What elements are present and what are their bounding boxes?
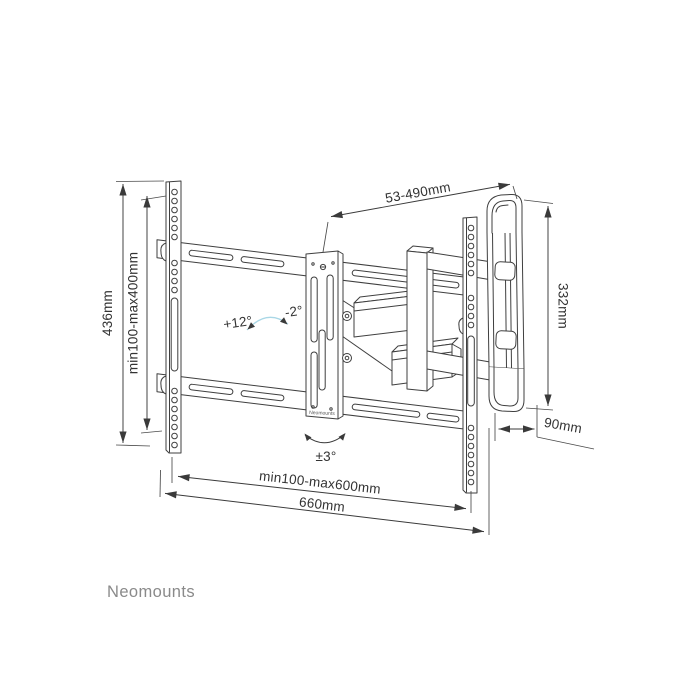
level-label: ±3° — [316, 449, 337, 464]
tilt-down-label: -2° — [284, 303, 304, 320]
width-total-label: 660mm — [298, 494, 345, 514]
brand-logo-text: Neomounts — [107, 583, 195, 601]
plate-brand-label: Neomounts — [309, 410, 335, 417]
tilt-up-label: +12° — [222, 313, 253, 332]
wall-plate-height-label: 332mm — [556, 283, 571, 329]
depth-label: 90mm — [543, 415, 583, 436]
vesa-height-label: min100-max400mm — [126, 252, 141, 374]
dimension-vesa-height: min100-max400mm — [126, 196, 167, 433]
wall-mount-diagram: Neomounts 436mm min100-max400mm 53-490mm — [0, 0, 700, 700]
diagram-canvas: Neomounts 436mm min100-max400mm 53-490mm — [0, 0, 700, 700]
tilt-annotation: +12° -2° — [222, 303, 303, 332]
level-annotation: ±3° — [305, 433, 346, 464]
left-tv-rail — [161, 181, 181, 453]
extension-range-label: 53-490mm — [384, 179, 452, 206]
wall-bracket — [487, 194, 524, 411]
height-total-label: 436mm — [100, 290, 115, 336]
dimension-wall-plate-height: 332mm — [524, 200, 571, 410]
